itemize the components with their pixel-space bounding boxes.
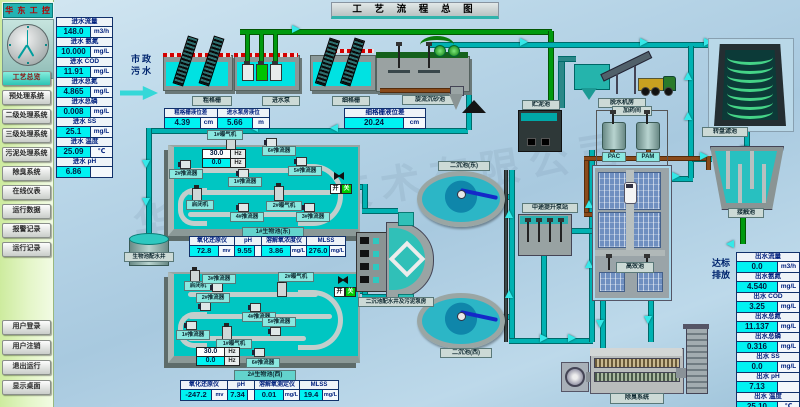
monitor-value: 9.55 bbox=[235, 246, 254, 256]
flow-arrow bbox=[520, 38, 528, 46]
ditch1-p3-label: 3#推流器 bbox=[296, 212, 330, 222]
pipe bbox=[240, 29, 552, 35]
param-label: 出水 pH bbox=[737, 373, 799, 381]
param-label: 进水 温度 bbox=[57, 138, 112, 146]
meas-label: 细格栅液位差 bbox=[345, 109, 425, 117]
baffle bbox=[750, 151, 754, 189]
ditch1-hoist-label: 启闭机 bbox=[186, 200, 214, 210]
baffle bbox=[726, 151, 730, 189]
monitor-unit: mg/L bbox=[323, 390, 338, 400]
ditch2-p5-label: 5#推流器 bbox=[262, 317, 296, 327]
chimney-cap bbox=[683, 324, 709, 329]
conveyor-leg bbox=[634, 66, 636, 94]
monitor-value: 19.4 bbox=[300, 390, 322, 400]
pam-label: PAM bbox=[636, 152, 660, 162]
lift-station-label: 中途提升泵站 bbox=[522, 203, 578, 213]
pipe bbox=[509, 170, 515, 342]
ditch2-p2-label: 2#推流器 bbox=[196, 293, 230, 303]
param-row: 25.09℃ bbox=[57, 147, 112, 157]
param-value: 7.13 bbox=[737, 382, 777, 392]
settler-panel bbox=[598, 172, 627, 210]
inlet-pump-label: 进水泵 bbox=[262, 96, 300, 106]
meas-unit: m bbox=[253, 118, 269, 128]
grit-mixer-blade bbox=[418, 70, 440, 73]
deodor-system-label: 除臭系统 bbox=[610, 393, 664, 404]
freq-row: 0.0Hz bbox=[197, 357, 239, 365]
grit-mixer-blade bbox=[388, 70, 410, 73]
fan-icon bbox=[565, 367, 585, 387]
monitor-header: 氧化还原仪 bbox=[181, 381, 227, 389]
sidebar-item-7[interactable]: 运行数据 bbox=[2, 204, 51, 219]
freq-value: 30.0 bbox=[203, 150, 230, 158]
param-value: 6.86 bbox=[57, 167, 90, 177]
param-label: 出水流量 bbox=[737, 253, 799, 261]
param-value: 0.0 bbox=[737, 262, 777, 272]
propeller-icon[interactable] bbox=[254, 348, 265, 357]
param-label: 出水 温度 bbox=[737, 393, 799, 401]
baffle bbox=[762, 164, 766, 203]
tank-rail bbox=[234, 53, 298, 57]
ditch2-p3-label: 3#推流器 bbox=[202, 274, 236, 284]
well-stub bbox=[398, 212, 414, 226]
monitor-unit: mg/L bbox=[284, 390, 299, 400]
flow-arrow bbox=[585, 200, 593, 208]
param-unit bbox=[91, 167, 112, 177]
sidebar-item-5[interactable]: 除臭系统 bbox=[2, 166, 51, 181]
discharge-note-line2: 排放 bbox=[712, 268, 730, 281]
flow-arrow bbox=[142, 160, 150, 168]
scada-screen: 华东工控技术有限公司 华 东 工 控 工艺总览预处理系统二级处理系统三级处理系统… bbox=[0, 0, 800, 407]
monitor-unit: mg/L bbox=[330, 246, 345, 256]
meas-label: 进水泵房液位 bbox=[218, 109, 270, 117]
param-label: 进水总磷 bbox=[57, 98, 112, 106]
sidebar-item-1[interactable]: 预处理系统 bbox=[2, 90, 51, 105]
sidebar-nav: 工艺总览预处理系统二级处理系统三级处理系统污泥处理系统除臭系统在线仪表运行数据报… bbox=[0, 71, 53, 257]
lift-pump-icon bbox=[560, 222, 562, 242]
param-row: 4.865mg/L bbox=[57, 87, 112, 97]
disc-filter-label: 转盘滤池 bbox=[702, 127, 748, 137]
pac-tank-graphic[interactable] bbox=[602, 122, 626, 150]
filter-disc bbox=[727, 104, 773, 119]
ditch2-aerator2-label: 2#曝气机 bbox=[278, 272, 314, 282]
pump-room-unit bbox=[360, 276, 369, 283]
param-label: 进水 SS bbox=[57, 118, 112, 126]
ditch1-monitor-table: 氧化还原仪pH溶解氧浓度仪MLSS72.8mv9.553.86mg/L276.0… bbox=[189, 236, 346, 257]
page-title: 工 艺 流 程 总 图 bbox=[331, 2, 499, 19]
settler-panel bbox=[599, 272, 625, 292]
monitor-value: 72.8 bbox=[190, 246, 218, 256]
pipe bbox=[688, 46, 694, 156]
vehicle-window bbox=[626, 184, 633, 188]
sludge-storage-label: 贮泥池 bbox=[522, 100, 560, 110]
freq-unit: Hz bbox=[231, 150, 245, 158]
flow-arrow bbox=[640, 38, 648, 46]
ditch1-p2-label: 2#推流器 bbox=[169, 169, 203, 179]
screen-level-box: 粗格栅液位差 4.39cm 进水泵房液位 5.66m bbox=[164, 108, 270, 129]
monitor-value: 276.0 bbox=[307, 246, 329, 256]
param-value: 11.91 bbox=[57, 67, 90, 77]
bio-distribution-well-top bbox=[129, 233, 169, 245]
param-unit: mg/L bbox=[778, 342, 799, 352]
param-label: 进水 pH bbox=[57, 158, 112, 166]
sludge-storage-rim bbox=[521, 113, 557, 121]
flow-arrow bbox=[292, 25, 300, 33]
ditch1-frequency-box: 30.0Hz0.0Hz bbox=[202, 149, 246, 168]
monitor-value: 7.34 bbox=[228, 390, 247, 400]
inlet-parameters-panel: 进水流量148.0m3/h进水 氨氮10.000mg/L进水 COD11.91m… bbox=[56, 17, 113, 178]
monitor-header: pH bbox=[228, 381, 254, 389]
truck-wheel bbox=[641, 87, 650, 96]
param-unit: mg/L bbox=[91, 47, 112, 57]
meas-label: 粗格栅液位差 bbox=[165, 109, 217, 117]
pipe bbox=[509, 338, 593, 344]
monitor-unit: mv bbox=[212, 390, 227, 400]
flow-arrow bbox=[505, 210, 513, 218]
propeller-icon[interactable] bbox=[180, 160, 191, 169]
freq-value: 30.0 bbox=[197, 348, 224, 356]
company-logo: 华 东 工 控 bbox=[2, 2, 54, 19]
meas-value: 20.24 bbox=[345, 118, 403, 128]
pac-label: PAC bbox=[602, 152, 626, 162]
ditch1-aerator1-label: 1#曝气机 bbox=[207, 130, 243, 140]
clarifier-hub bbox=[457, 312, 466, 321]
param-value: 4.540 bbox=[737, 282, 777, 292]
propeller-icon[interactable] bbox=[186, 321, 197, 330]
clarifier-west-label: 二沉池(西) bbox=[440, 348, 492, 358]
pump-room-unit bbox=[360, 237, 369, 244]
meas-value: 4.39 bbox=[165, 118, 200, 128]
inlet-pump-1-icon[interactable] bbox=[242, 64, 254, 81]
lift-pump-icon bbox=[538, 222, 540, 242]
freq-value: 0.0 bbox=[203, 159, 230, 167]
meas-unit: cm bbox=[404, 118, 425, 128]
param-label: 出水总磷 bbox=[737, 333, 799, 341]
fine-screen-level-box: 细格栅液位差 20.24cm bbox=[344, 108, 426, 129]
clarifier-east[interactable] bbox=[417, 171, 505, 227]
param-row: 4.540mg/L bbox=[737, 282, 799, 292]
param-row: 148.0m3/h bbox=[57, 27, 112, 37]
monitor-value: -247.2 bbox=[181, 390, 211, 400]
flow-arrow bbox=[142, 198, 150, 206]
param-unit: mg/L bbox=[91, 127, 112, 137]
fine-screen-label: 细格栅 bbox=[332, 96, 370, 106]
contact-tank-label: 接触池 bbox=[728, 208, 764, 218]
ditch2-gate-closed[interactable]: 关 bbox=[345, 287, 356, 297]
param-unit bbox=[778, 382, 799, 392]
baffle bbox=[738, 164, 742, 203]
param-value: 4.865 bbox=[57, 87, 90, 97]
session-button-1[interactable]: 用户注销 bbox=[2, 340, 51, 355]
freq-value: 0.0 bbox=[197, 357, 224, 365]
param-row: 11.91mg/L bbox=[57, 67, 112, 77]
param-value: 0.316 bbox=[737, 342, 777, 352]
pipe bbox=[558, 56, 576, 62]
truck-wheel bbox=[664, 87, 673, 96]
freq-unit: Hz bbox=[231, 159, 245, 167]
freq-unit: Hz bbox=[225, 357, 239, 365]
monitor-header: MLSS bbox=[307, 237, 345, 245]
pipe bbox=[273, 34, 278, 62]
param-row: 0.0m3/h bbox=[737, 262, 799, 272]
sidebar-item-8[interactable]: 报警记录 bbox=[2, 223, 51, 238]
pump-room-cell bbox=[373, 264, 379, 270]
monitor-value-row: 72.8mv9.553.86mg/L276.0mg/L bbox=[190, 246, 345, 256]
inlet-pump-2-icon[interactable] bbox=[256, 64, 268, 81]
param-value: 25.10 bbox=[737, 402, 777, 407]
param-unit: mg/L bbox=[778, 302, 799, 312]
param-unit: mg/L bbox=[91, 87, 112, 97]
pump-room-cell bbox=[373, 251, 379, 257]
lift-pump-icon bbox=[549, 222, 551, 242]
ditch2-p1-label: 1#推流器 bbox=[176, 330, 210, 340]
pipe bbox=[259, 34, 264, 62]
session-button-2[interactable]: 退出运行 bbox=[2, 360, 51, 375]
pump-room-cell bbox=[373, 277, 379, 283]
sidebar-item-4[interactable]: 污泥处理系统 bbox=[2, 147, 51, 162]
distribution-well-label: 二沉池配水井及污泥泵房 bbox=[358, 297, 434, 307]
flow-arrow bbox=[540, 334, 548, 342]
sludge-pump-dot bbox=[527, 138, 536, 146]
monitor-header: 溶解氧浓度仪 bbox=[262, 237, 306, 245]
settler-panel bbox=[632, 212, 661, 248]
param-label: 进水 COD bbox=[57, 58, 112, 66]
freq-row: 30.0Hz bbox=[197, 348, 239, 356]
param-label: 进水总氮 bbox=[57, 78, 112, 86]
influent-label-line2: 污水 bbox=[131, 64, 153, 77]
flow-arrow bbox=[568, 334, 576, 342]
pam-tank-graphic[interactable] bbox=[636, 122, 660, 150]
ditch1-gate-open[interactable]: 开 bbox=[330, 184, 341, 194]
ditch1-p6-label: 6#推流器 bbox=[262, 146, 296, 156]
param-row: 11.137mg/L bbox=[737, 322, 799, 332]
monitor-unit bbox=[248, 390, 254, 400]
biofilter-media bbox=[594, 358, 680, 368]
clarifier-hub bbox=[457, 190, 466, 199]
param-unit: m3/h bbox=[778, 262, 799, 272]
ditch1-gate-closed[interactable]: 关 bbox=[341, 184, 352, 194]
monitor-header-row: 氧化还原仪pH溶解氧测定仪MLSS bbox=[181, 381, 338, 389]
tank-mixer-icon bbox=[608, 258, 610, 270]
param-value: 0.0 bbox=[737, 362, 777, 372]
sidebar-item-0[interactable]: 工艺总览 bbox=[2, 71, 51, 86]
settler-panel bbox=[637, 272, 663, 292]
tank-rail bbox=[163, 53, 231, 57]
monitor-header: MLSS bbox=[300, 381, 338, 389]
session-button-3[interactable]: 显示桌面 bbox=[2, 380, 51, 395]
propeller-icon[interactable] bbox=[304, 203, 315, 212]
param-row: 10.000mg/L bbox=[57, 47, 112, 57]
propeller-icon[interactable] bbox=[212, 283, 223, 292]
param-label: 出水氨氮 bbox=[737, 273, 799, 281]
param-value: 10.000 bbox=[57, 47, 90, 57]
settler-panel bbox=[598, 212, 627, 248]
sidebar-item-9[interactable]: 运行记录 bbox=[2, 242, 51, 257]
clarifier-east-label: 二沉池(东) bbox=[438, 161, 490, 171]
freq-row: 0.0Hz bbox=[203, 159, 245, 167]
monitor-header: 溶解氧测定仪 bbox=[255, 381, 299, 389]
param-unit: m3/h bbox=[91, 27, 112, 37]
outlet-parameters-panel: 出水流量0.0m3/h出水氨氮4.540mg/L出水 COD3.25mg/L出水… bbox=[736, 252, 800, 407]
bio-distribution-well-label: 生物池配水井 bbox=[124, 252, 174, 262]
sand-pipe bbox=[380, 88, 452, 93]
lift-pump-icon bbox=[527, 222, 529, 242]
propeller-icon[interactable] bbox=[238, 203, 249, 212]
blower-pipe bbox=[420, 36, 454, 54]
biofilter-media bbox=[594, 372, 680, 382]
pam-mixer-icon bbox=[646, 114, 648, 124]
monitor-header-row: 氧化还原仪pH溶解氧浓度仪MLSS bbox=[190, 237, 345, 245]
param-value: 148.0 bbox=[57, 27, 90, 37]
param-value: 3.25 bbox=[737, 302, 777, 312]
flow-arrow bbox=[700, 152, 708, 160]
flow-arrow bbox=[726, 240, 734, 248]
propeller-icon[interactable] bbox=[296, 157, 307, 166]
flow-arrow bbox=[596, 320, 604, 328]
pipe bbox=[740, 214, 746, 244]
sidebar-session: 用户登录用户注销退出运行显示桌面 bbox=[0, 315, 53, 395]
param-row: 0.0mg/L bbox=[737, 362, 799, 372]
monitor-value-row: -247.2mv7.340.01mg/L19.4mg/L bbox=[181, 390, 338, 400]
monitor-header: pH bbox=[235, 237, 261, 245]
monitor-header: 氧化还原仪 bbox=[190, 237, 234, 245]
param-row: 25.10℃ bbox=[737, 402, 799, 407]
monitor-unit: mv bbox=[219, 246, 234, 256]
param-value: 11.137 bbox=[737, 322, 777, 332]
param-row: 3.25mg/L bbox=[737, 302, 799, 312]
sludge-pump-dot bbox=[541, 138, 550, 146]
freq-unit: Hz bbox=[225, 348, 239, 356]
param-unit: ℃ bbox=[778, 402, 799, 407]
param-label: 出水 SS bbox=[737, 353, 799, 361]
pipe bbox=[146, 128, 152, 234]
ditch2-frequency-box: 30.0Hz0.0Hz bbox=[196, 347, 240, 366]
sidebar-item-3[interactable]: 三级处理系统 bbox=[2, 128, 51, 143]
flow-arrow bbox=[330, 124, 338, 132]
param-unit: mg/L bbox=[778, 362, 799, 372]
monitor-unit: mg/L bbox=[291, 246, 306, 256]
param-value: 25.09 bbox=[57, 147, 90, 157]
pipe bbox=[362, 184, 368, 210]
monitor-unit bbox=[255, 246, 261, 256]
conveyor-leg bbox=[616, 74, 618, 94]
pump-room-unit bbox=[360, 250, 369, 257]
coarse-screen-label: 粗格栅 bbox=[192, 96, 232, 106]
flow-arrow bbox=[672, 172, 680, 180]
flow-arrow bbox=[684, 112, 692, 120]
cyclone-cone bbox=[449, 94, 463, 110]
inlet-pump-3-icon[interactable] bbox=[270, 64, 282, 81]
param-row: 0.316mg/L bbox=[737, 342, 799, 352]
influent-arrow bbox=[120, 86, 158, 100]
param-unit: mg/L bbox=[91, 67, 112, 77]
pipe bbox=[245, 34, 250, 62]
pac-mixer-icon bbox=[612, 114, 614, 124]
param-value: 25.1 bbox=[57, 127, 90, 137]
ditch1-p1-label: 1#推流器 bbox=[228, 177, 262, 187]
flow-arrow bbox=[684, 72, 692, 80]
sidebar-item-6[interactable]: 在线仪表 bbox=[2, 185, 51, 200]
param-unit: mg/L bbox=[91, 107, 112, 117]
pipe bbox=[362, 208, 398, 214]
aerator-icon[interactable] bbox=[277, 282, 287, 297]
param-label: 出水 COD bbox=[737, 293, 799, 301]
param-row: 6.86 bbox=[57, 167, 112, 177]
param-row: 7.13 bbox=[737, 382, 799, 392]
truck-wheel bbox=[651, 87, 660, 96]
param-value: 0.008 bbox=[57, 107, 90, 117]
meas-value: 5.66 bbox=[218, 118, 253, 128]
propeller-icon[interactable] bbox=[250, 303, 261, 312]
ditch2-p6-label: 6#推流器 bbox=[246, 358, 280, 368]
ditch1-p4-label: 4#推流器 bbox=[230, 212, 264, 222]
ditch1-p5-label: 5#推流器 bbox=[288, 166, 322, 176]
freq-row: 30.0Hz bbox=[203, 150, 245, 158]
param-label: 进水 氨氮 bbox=[57, 38, 112, 46]
monitor-value: 0.01 bbox=[255, 390, 283, 400]
param-row: 0.008mg/L bbox=[57, 107, 112, 117]
propeller-icon[interactable] bbox=[200, 302, 211, 311]
ditch1-aerator2-label: 2#曝气机 bbox=[266, 201, 302, 211]
biofilter-top bbox=[590, 348, 682, 356]
param-unit: mg/L bbox=[778, 282, 799, 292]
flow-arrow bbox=[505, 290, 513, 298]
high-eff-tank-label: 高效池 bbox=[616, 262, 654, 273]
sidebar-item-2[interactable]: 二级处理系统 bbox=[2, 109, 51, 124]
grit-mixer-icon bbox=[398, 46, 400, 68]
clock-widget bbox=[2, 19, 54, 79]
param-row: 25.1mg/L bbox=[57, 127, 112, 137]
pump-room-unit bbox=[360, 263, 369, 270]
aerator-icon[interactable] bbox=[274, 186, 284, 201]
ditch2-monitor-table: 氧化还原仪pH溶解氧测定仪MLSS-247.2mv7.340.01mg/L19.… bbox=[180, 380, 339, 401]
session-button-0[interactable]: 用户登录 bbox=[2, 320, 51, 335]
monitor-value: 3.86 bbox=[262, 246, 290, 256]
flow-arrow bbox=[644, 316, 652, 324]
param-label: 进水流量 bbox=[57, 18, 112, 26]
dewatering-hopper bbox=[581, 88, 597, 100]
param-unit: ℃ bbox=[91, 147, 112, 157]
flow-arrow bbox=[585, 260, 593, 268]
propeller-icon[interactable] bbox=[270, 327, 281, 336]
ditch2-gate-open[interactable]: 开 bbox=[334, 287, 345, 297]
sand-pile bbox=[462, 100, 486, 113]
pump-room-cell bbox=[373, 238, 379, 244]
param-unit: mg/L bbox=[778, 322, 799, 332]
pipe bbox=[541, 253, 547, 339]
chimney bbox=[686, 328, 708, 394]
meas-unit: cm bbox=[201, 118, 217, 128]
param-label: 出水总氮 bbox=[737, 313, 799, 321]
